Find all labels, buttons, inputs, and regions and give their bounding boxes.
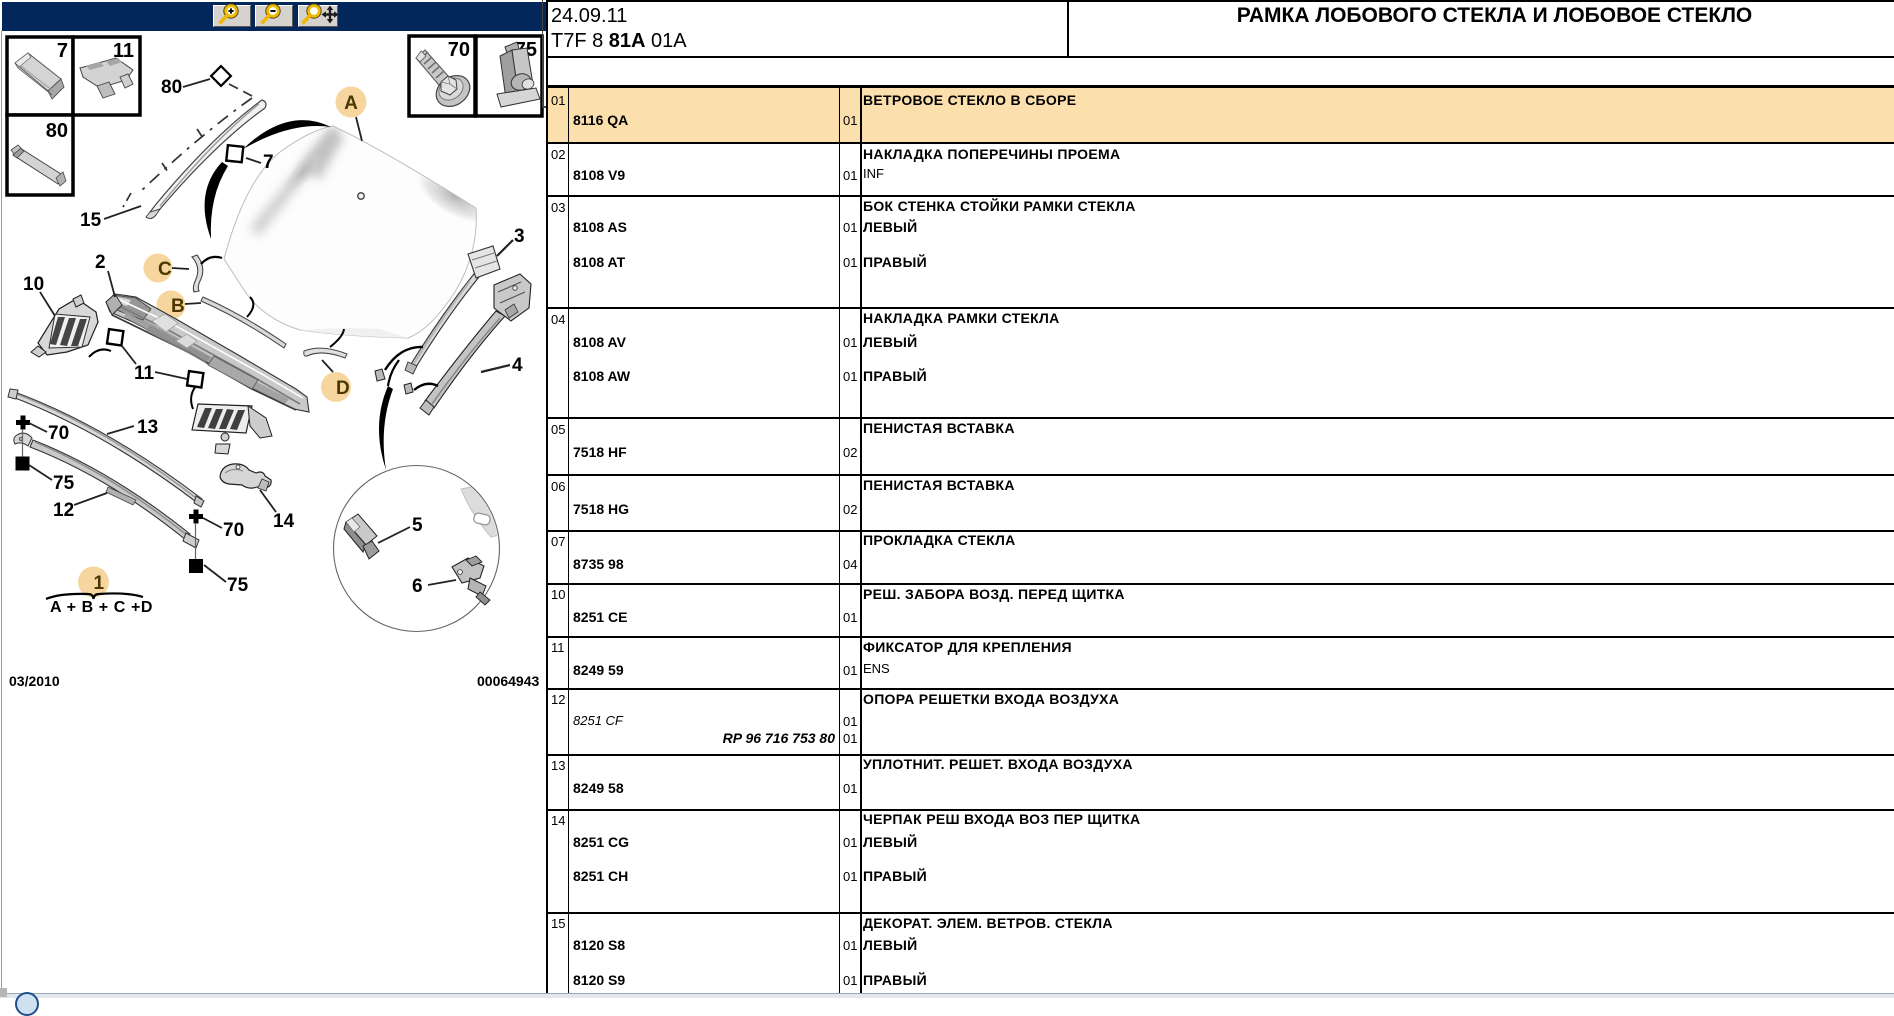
svg-text:00064943: 00064943 <box>477 673 540 689</box>
svg-text:6: 6 <box>412 576 423 597</box>
svg-text:5: 5 <box>412 515 423 536</box>
svg-text:14: 14 <box>273 511 295 532</box>
svg-text:11: 11 <box>134 363 155 384</box>
svg-text:70: 70 <box>48 423 69 444</box>
svg-text:10: 10 <box>23 274 44 295</box>
svg-text:B: B <box>171 296 185 317</box>
svg-text:C: C <box>158 259 172 280</box>
svg-text:A + B + C +D: A + B + C +D <box>50 599 153 616</box>
svg-text:2: 2 <box>95 252 106 273</box>
svg-text:12: 12 <box>53 500 74 521</box>
svg-text:03/2010: 03/2010 <box>9 673 60 689</box>
svg-text:D: D <box>336 378 350 399</box>
svg-text:1: 1 <box>94 573 105 594</box>
svg-text:75: 75 <box>53 473 75 494</box>
svg-text:70: 70 <box>448 39 470 61</box>
svg-text:7: 7 <box>57 40 68 62</box>
svg-text:80: 80 <box>46 120 68 142</box>
svg-text:4: 4 <box>512 355 523 376</box>
svg-text:70: 70 <box>223 520 244 541</box>
svg-text:75: 75 <box>227 575 249 596</box>
svg-text:13: 13 <box>137 417 158 438</box>
